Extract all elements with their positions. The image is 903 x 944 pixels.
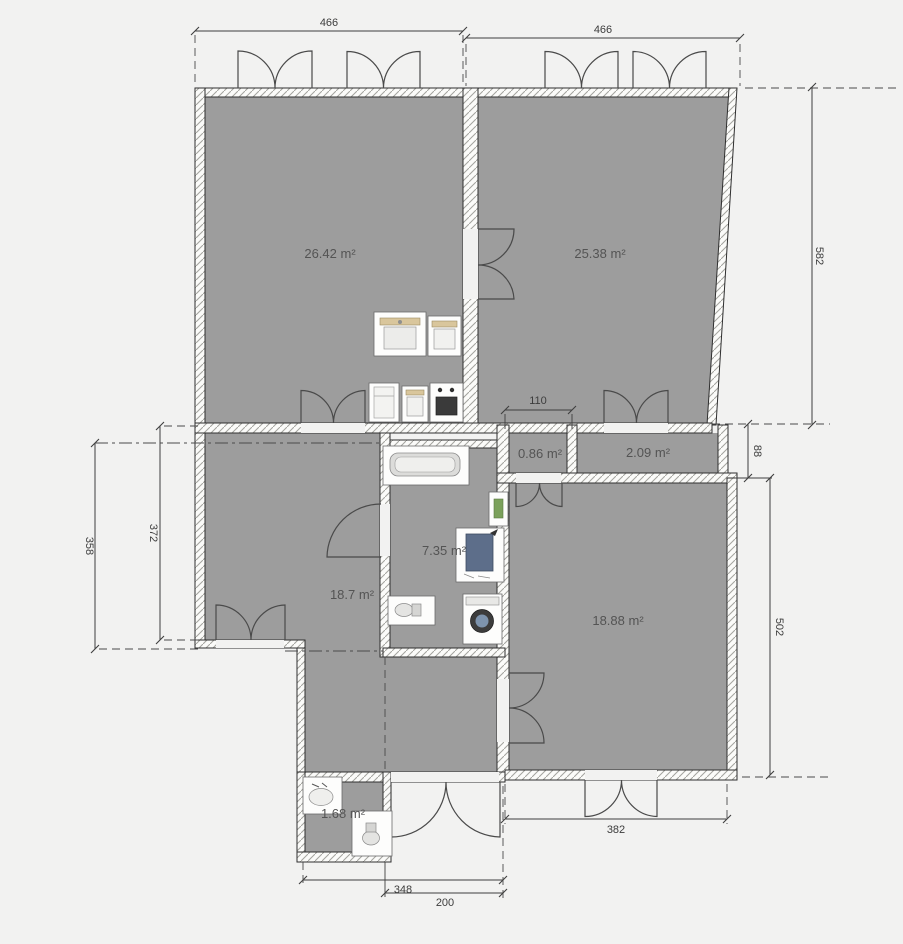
floor-plan-canvas: 466 466 582 110 88 502 372 — [0, 0, 903, 944]
dim-label-right-lower: 502 — [773, 618, 785, 636]
french-door-bottom-right[interactable] — [585, 780, 657, 817]
dimension-top-left: 466 — [191, 17, 467, 86]
hallway-floor[interactable] — [305, 640, 497, 772]
dim-label-top-left: 466 — [320, 17, 338, 29]
dim-label-left-outer: 358 — [83, 537, 95, 555]
dim-label-closet-width: 110 — [529, 395, 547, 407]
french-door-top-right-2[interactable] — [633, 52, 706, 89]
wall-bathroom-bottom — [383, 648, 505, 657]
dimension-bottom-right: 382 — [501, 784, 731, 836]
stove-icon[interactable] — [430, 383, 463, 422]
dimension-right-lower: 502 — [742, 474, 828, 779]
dim-label-top-right: 466 — [594, 24, 612, 36]
dim-label-closet-height: 88 — [751, 445, 763, 457]
room-label-bathroom: 7.35 m² — [422, 543, 467, 558]
dim-label-right-upper: 582 — [813, 247, 825, 265]
toilet-icon[interactable] — [388, 596, 435, 625]
dim-label-bottom-right: 382 — [607, 824, 625, 836]
dim-label-left-inner: 372 — [147, 524, 159, 542]
room-label-closet-wide: 2.09 m² — [626, 445, 671, 460]
french-door-top-left-1[interactable] — [238, 51, 312, 88]
kitchen-sink-cabinet-icon[interactable] — [374, 312, 426, 356]
radiator-icon[interactable] — [489, 492, 508, 526]
room-label-top-left: 26.42 m² — [304, 246, 356, 261]
kitchen-base-cabinet-icon[interactable] — [402, 386, 428, 422]
room-label-wc-small: 1.68 m² — [321, 806, 366, 821]
wall-hallway-left — [297, 648, 305, 774]
floor-plan-page: 466 466 582 110 88 502 372 — [0, 0, 903, 944]
french-door-bottom-exit[interactable] — [391, 782, 500, 837]
room-label-bottom-right: 18.88 m² — [592, 613, 644, 628]
wall-bottom-room-right — [727, 478, 737, 780]
bathtub-icon[interactable] — [383, 446, 469, 485]
room-label-top-right: 25.38 m² — [574, 246, 626, 261]
wall-left — [195, 88, 205, 648]
dim-label-bottom-door: 200 — [436, 897, 454, 909]
room-label-closet-small: 0.86 m² — [518, 446, 563, 461]
room-label-mid-left: 18.7 m² — [330, 587, 375, 602]
washing-machine-icon[interactable] — [463, 594, 502, 644]
french-door-top-right-1[interactable] — [545, 52, 618, 89]
dim-label-bottom-outer: 348 — [394, 884, 412, 896]
dimension-closet-height: 88 — [735, 420, 772, 482]
dimension-top-right: 466 — [462, 24, 898, 88]
kitchen-wall-cabinet-icon[interactable] — [428, 316, 461, 356]
french-door-top-left-2[interactable] — [347, 52, 420, 89]
fridge-icon[interactable] — [369, 383, 399, 422]
